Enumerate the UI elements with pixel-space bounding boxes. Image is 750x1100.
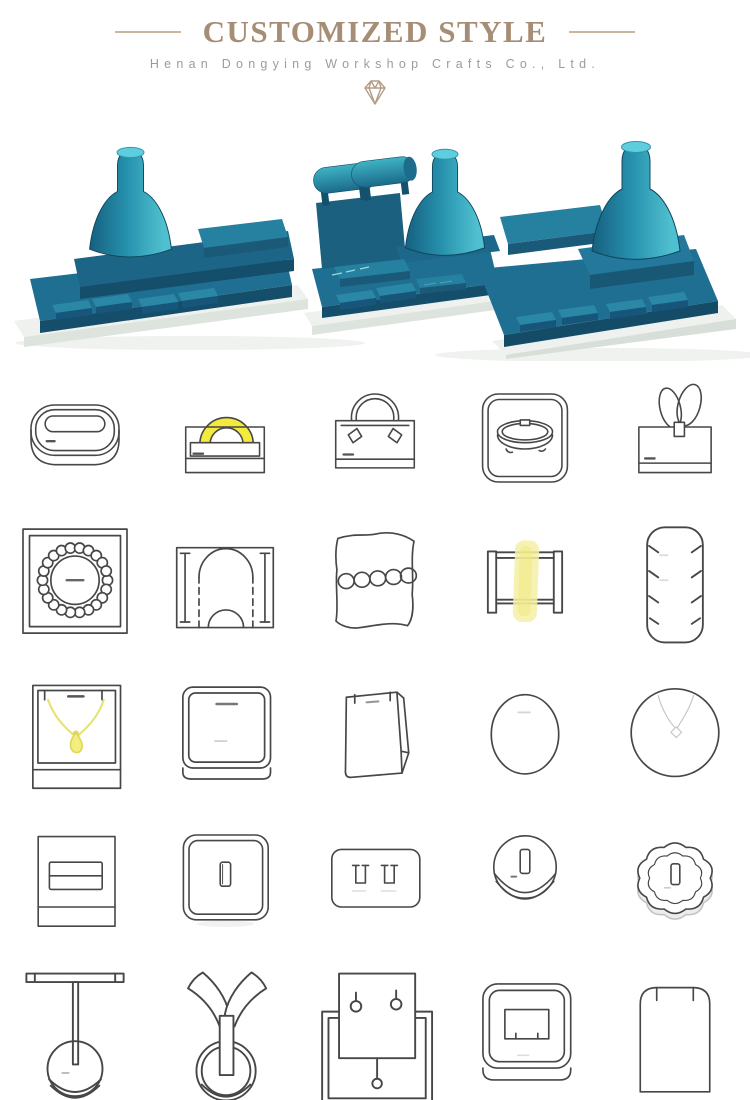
yellow-necklace-highlight [48,700,104,753]
sketch-wedge-pouch-display [300,661,450,811]
sketch-y-shape-bracelet-stand [150,955,300,1100]
company-name: Henan Dongying Workshop Crafts Co., Ltd. [0,57,750,71]
page: CUSTOMIZED STYLE Henan Dongying Workshop… [0,0,750,1100]
double-loop-ring-stand-icon [620,383,730,493]
sketch-double-loop-ring-stand [600,371,750,504]
display-set-left [14,147,308,347]
sketch-pearl-necklace-tray [0,504,150,661]
oval-jewelry-case-icon [20,383,130,493]
sketch-t-bar-bracelet-stand [0,955,150,1100]
sketch-grid [0,371,750,1100]
yellow-bangle-highlight [205,422,248,444]
pendant-necklace-box-icon [16,677,134,795]
double-ring-slot-pad-icon [319,827,431,939]
sketch-round-top-earring-card [600,955,750,1100]
sketch-double-slot-ring-stand [0,811,150,955]
sketch-ring-slot-box [150,811,300,955]
notched-earring-panel-icon [610,518,740,648]
title-rule-left [115,31,181,34]
earring-pin-card-stand-icon [301,963,449,1100]
header: CUSTOMIZED STYLE Henan Dongying Workshop… [0,0,750,109]
sketch-bangle-hook-stand [300,371,450,504]
sketch-earring-pin-card-stand [300,955,450,1100]
round-necklace-pad-icon [616,677,734,795]
sketch-watch-band-stand [450,504,600,661]
y-shape-bracelet-stand-icon [151,963,299,1100]
round-top-earring-card-icon [611,973,739,1100]
bracelet-pillow-icon [310,518,440,648]
sketch-square-display-block [150,661,300,811]
watch-band-stand-icon [460,518,590,648]
sketch-bracelet-pillow [300,504,450,661]
display-set-right [478,142,736,360]
hero-product-render [0,109,750,361]
display-set-middle [304,149,510,335]
title-rule-right [569,31,635,34]
yellow-band-highlight [513,539,540,622]
pearl-necklace-tray-icon [10,518,140,648]
earring-clip-box-icon [461,973,589,1100]
arch-dome-easel-icon [160,518,290,648]
flower-ring-holder-icon [619,827,731,939]
sketch-arch-dome-easel [150,504,300,661]
double-slot-ring-stand-icon [19,827,131,939]
sketch-bangle-arch-stand [150,371,300,504]
sketch-double-ring-slot-pad [300,811,450,955]
bangle-hook-stand-icon [320,383,430,493]
sketch-oval-display-pad [450,661,600,811]
sketch-pendant-necklace-box [0,661,150,811]
round-ring-holder-icon [469,827,581,939]
sketch-round-necklace-pad [600,661,750,811]
sketch-flower-ring-holder [600,811,750,955]
diamond-icon [0,79,750,109]
bangle-tray-box-icon [470,383,580,493]
jewelry-display-set-render [0,109,750,361]
wedge-pouch-display-icon [316,677,434,795]
oval-display-pad-icon [466,677,584,795]
square-display-block-icon [166,677,284,795]
t-bar-bracelet-stand-icon [1,963,149,1100]
sketch-bangle-tray-box [450,371,600,504]
sketch-earring-clip-box [450,955,600,1100]
sketch-oval-jewelry-case [0,371,150,504]
faint-necklace [658,696,693,738]
page-title: CUSTOMIZED STYLE [203,14,548,50]
bangle-arch-stand-icon [170,383,280,493]
title-row: CUSTOMIZED STYLE [0,14,750,50]
ring-slot-box-icon [169,827,281,939]
sketch-round-ring-holder [450,811,600,955]
sketch-notched-earring-panel [600,504,750,661]
